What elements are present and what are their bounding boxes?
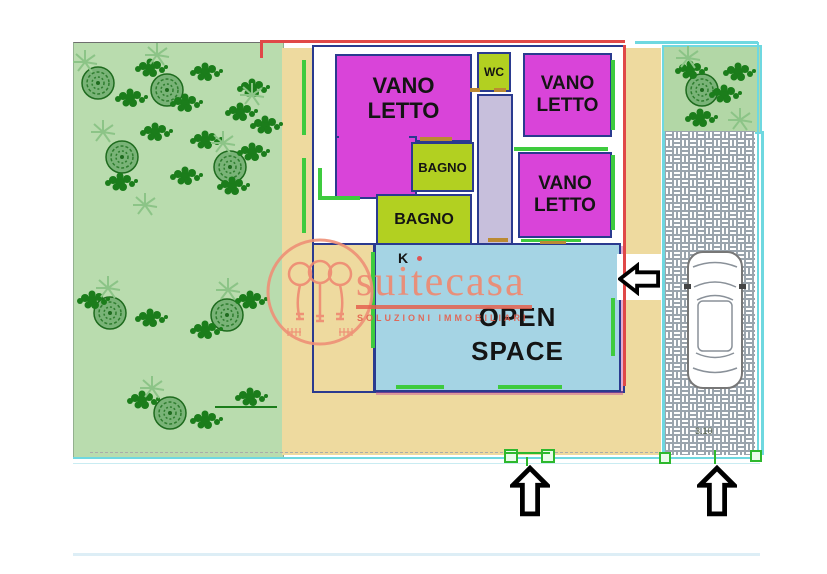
driveway-gate-post-left [659,452,671,464]
window-right-mid [611,155,615,230]
plot-boundary-dashed [90,452,658,453]
window-mid-right [514,147,608,151]
room-label: VANO LETTO [525,173,605,217]
room-bedroom-top-left: VANO LETTO [335,54,472,142]
room-bedroom-right: VANO LETTO [518,152,612,238]
window-openspace-right [611,298,615,356]
watermark-underline [356,305,532,309]
roofline-top [260,40,625,43]
pedestrian-gate-bar [506,452,550,454]
fence-bottom-2 [73,463,760,464]
room-bedroom-top-right: VANO LETTO [523,53,612,137]
room-label: VANO LETTO [364,73,444,124]
room-join-patch [339,132,409,142]
corridor [477,94,513,246]
window-step-vert [318,168,322,198]
room-bathroom-lower: BAGNO [376,194,472,245]
room-label: BAGNO [418,160,466,175]
window-right-upper [611,60,615,130]
door-openspace [540,241,566,244]
room-label: BAGNO [394,211,454,229]
garden-left [73,42,284,458]
car-icon [684,247,746,393]
open-space-label: OPEN SPACE [445,300,590,368]
floor-plan: VANO LETTO WC VANO LETTO BAGNO BAGNO VAN… [0,0,827,574]
window-openspace-bottom-2 [498,385,562,389]
room-label: WC [484,65,504,79]
door-wc-left [470,88,480,92]
pedestrian-entry-arrow-up-icon [510,465,550,517]
garden-right [662,45,762,134]
roofline-left [260,40,263,58]
room-bathroom-upper: BAGNO [411,142,474,192]
door-bedroom1 [420,137,452,141]
roofline-right [623,45,626,386]
bottom-margin-line [73,553,760,556]
room-label: VANO LETTO [528,73,608,117]
driveway-gate-post-right [750,450,762,462]
watermark-brand: suitecasa [356,258,526,306]
dimension-label: 3.10 [695,426,713,436]
driveway-gate-tick [714,450,716,464]
fence-right [757,42,759,456]
fence-bottom-1 [73,457,760,459]
entrance-arrow-left-icon [618,262,660,296]
room-wc: WC [477,52,511,92]
door-wc-right [494,88,506,92]
watermark-tagline: SOLUZIONI IMMOBILIARI [357,313,529,323]
window-left-upper [302,60,306,135]
window-left-lower [302,158,306,233]
window-openspace-bottom-1 [396,385,444,389]
room-bedroom-top-left-extension [335,136,417,199]
driveway-entry-arrow-up-icon [697,465,737,517]
door-corridor [488,238,508,242]
fence-top-right [635,41,758,44]
window-step-horiz [318,196,360,200]
